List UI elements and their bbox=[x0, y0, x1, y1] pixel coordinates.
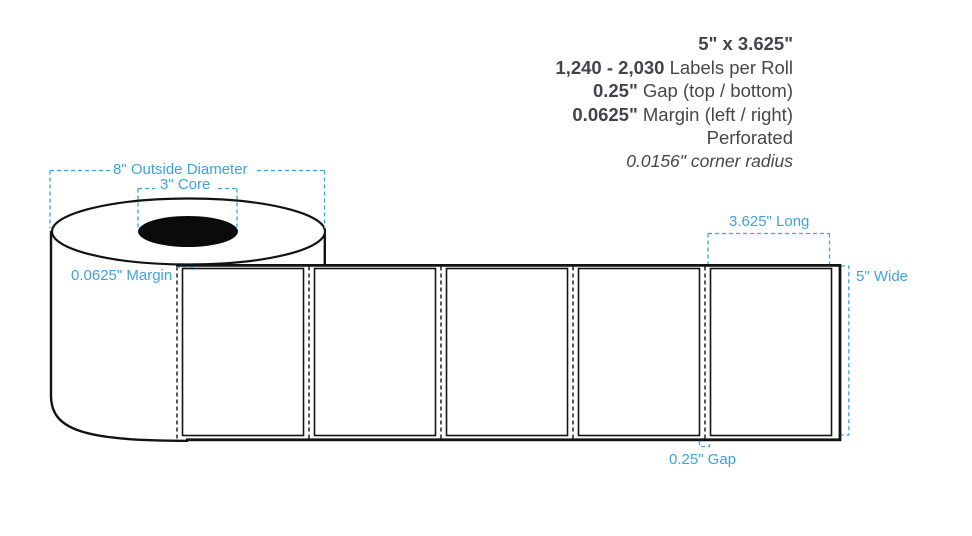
label-length-label: 3.625" Long bbox=[729, 214, 809, 230]
label-rect-3 bbox=[447, 269, 568, 436]
label-width-label: 5" Wide bbox=[856, 269, 908, 285]
label-roll-diagram-page: 5" x 3.625" 1,240 - 2,030 Labels per Rol… bbox=[0, 0, 972, 536]
roll-core-ellipse bbox=[138, 216, 238, 247]
width-dim-bracket bbox=[841, 266, 849, 435]
margin-label: 0.0625" Margin bbox=[71, 268, 172, 284]
core-label: 3" Core bbox=[160, 177, 210, 193]
label-rect-5 bbox=[711, 269, 832, 436]
label-rect-4 bbox=[579, 269, 700, 436]
label-gap-label: 0.25" Gap bbox=[669, 452, 736, 468]
label-rect-1 bbox=[183, 269, 304, 436]
label-rect-2 bbox=[315, 269, 436, 436]
gap-dim-bracket bbox=[700, 441, 710, 447]
